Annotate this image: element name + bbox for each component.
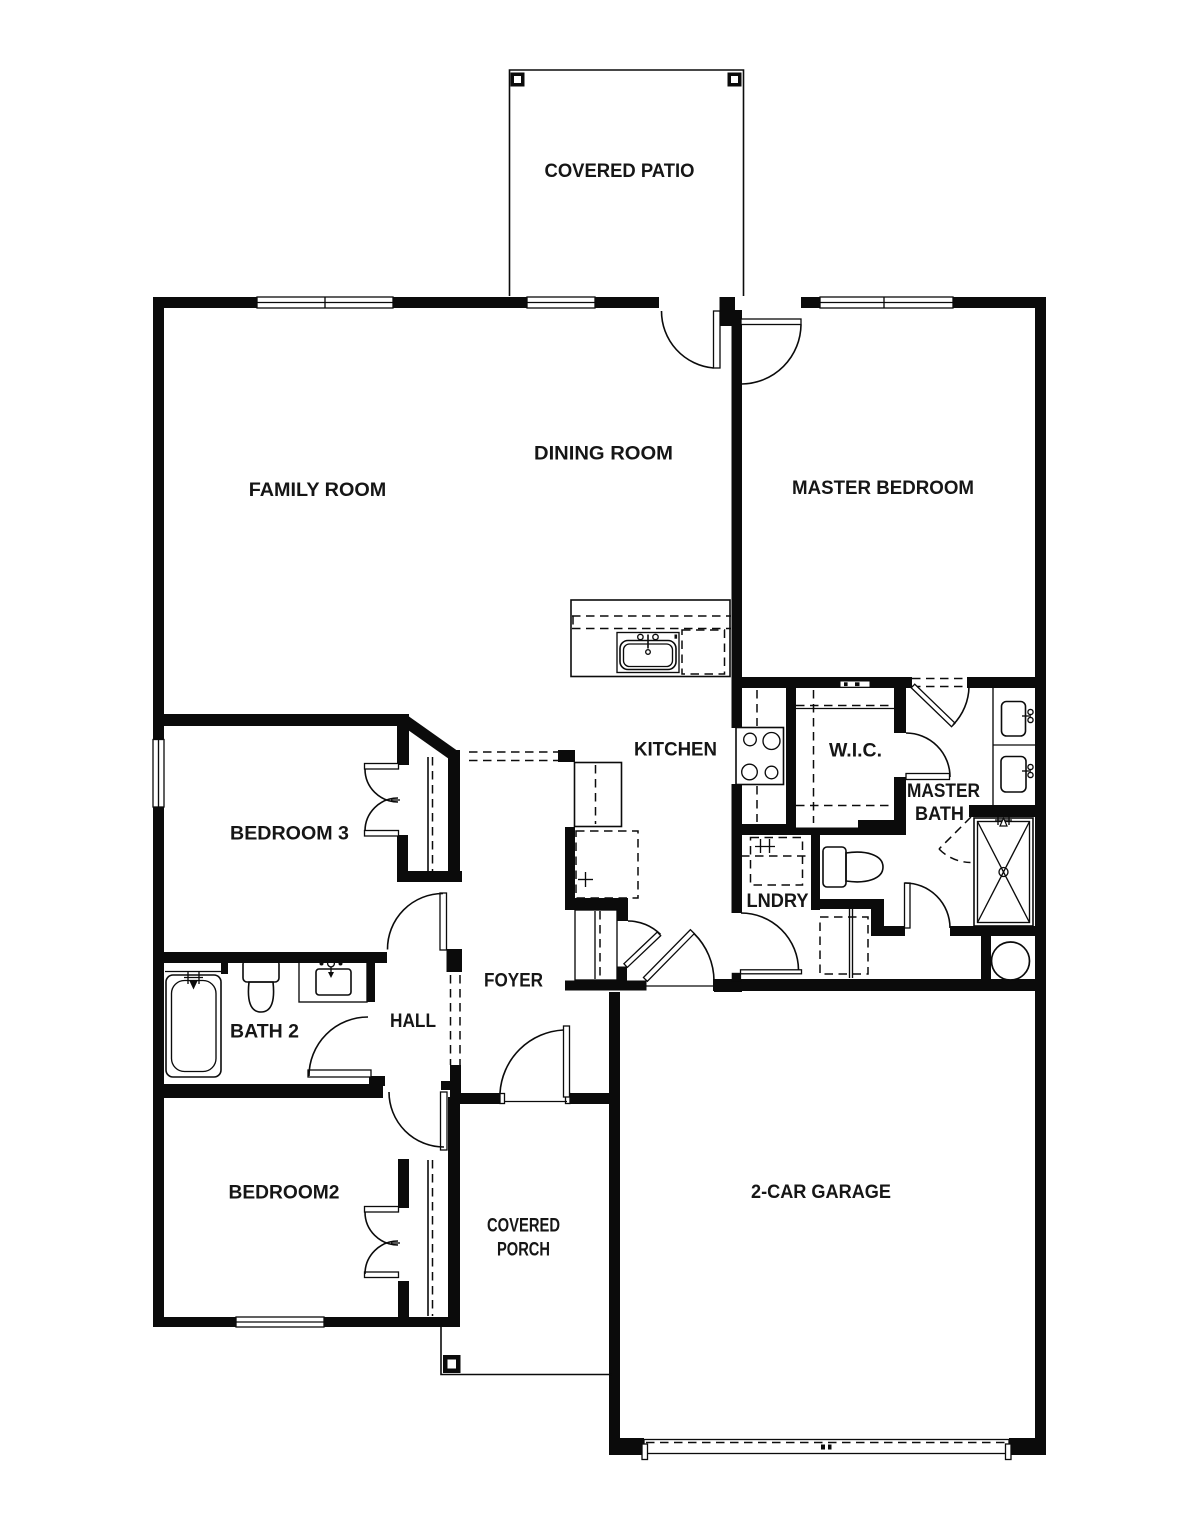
svg-text:MASTER BEDROOM: MASTER BEDROOM [792,477,974,499]
svg-text:BEDROOM2: BEDROOM2 [229,1182,340,1204]
svg-text:DINING ROOM: DINING ROOM [534,443,673,465]
svg-text:COVERED PATIO: COVERED PATIO [545,160,695,182]
svg-text:HALL: HALL [390,1010,436,1032]
svg-text:BEDROOM 3: BEDROOM 3 [230,823,349,845]
svg-text:COVERED: COVERED [487,1215,560,1237]
svg-text:W.I.C.: W.I.C. [829,740,882,762]
svg-text:LNDRY: LNDRY [747,890,809,912]
svg-text:KITCHEN: KITCHEN [634,739,717,761]
svg-text:BATH 2: BATH 2 [230,1021,299,1043]
svg-text:BATH: BATH [915,803,964,825]
svg-text:FAMILY ROOM: FAMILY ROOM [249,479,387,501]
svg-text:PORCH: PORCH [497,1239,550,1261]
svg-text:FOYER: FOYER [484,970,543,992]
svg-text:MASTER: MASTER [907,780,980,802]
svg-text:2-CAR GARAGE: 2-CAR GARAGE [751,1181,891,1203]
